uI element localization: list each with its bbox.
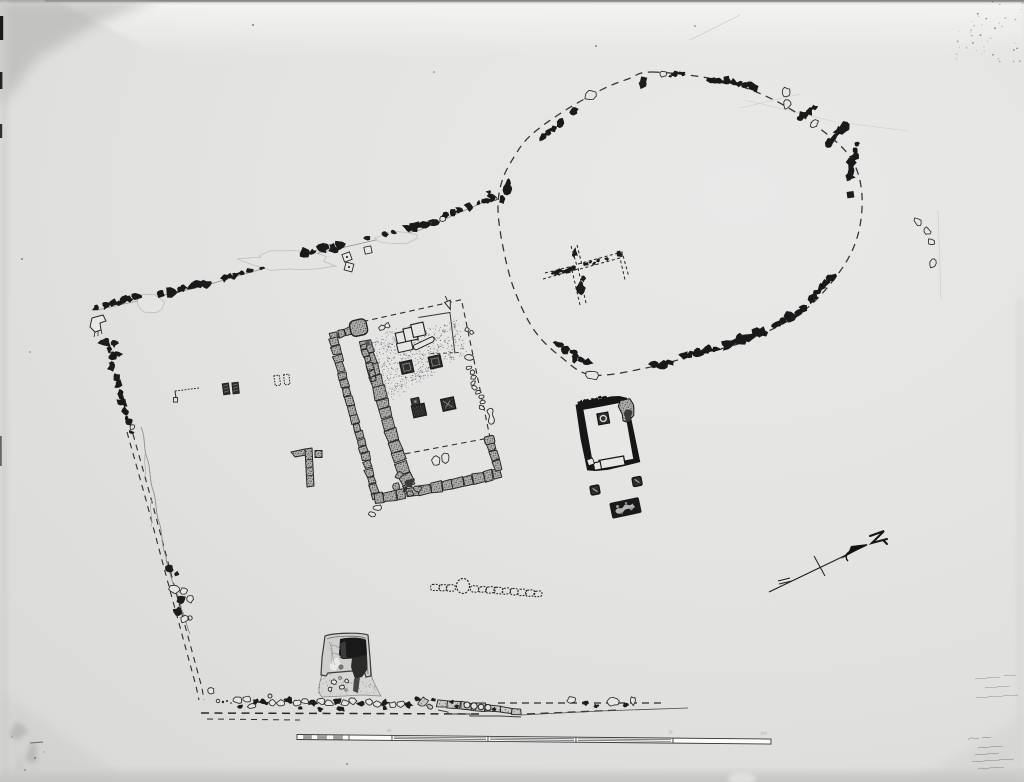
svg-text:100: 100: [760, 730, 767, 735]
